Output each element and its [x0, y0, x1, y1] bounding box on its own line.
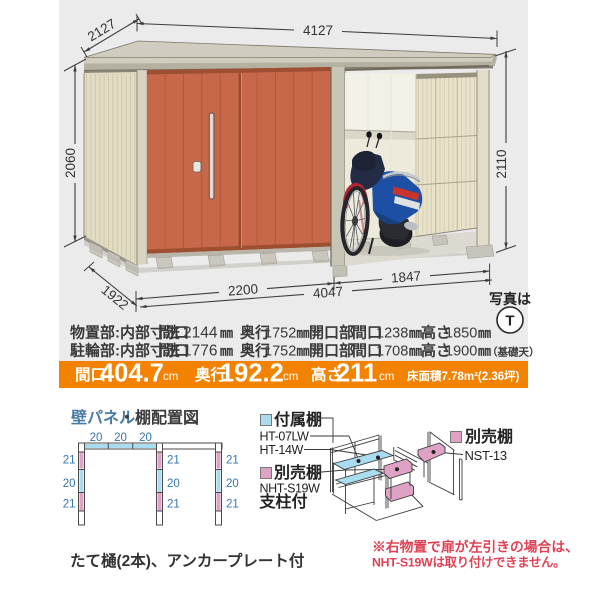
svg-text:開口部: 開口部 — [309, 324, 354, 342]
svg-text:NHT-S19Wは取り付けできません。: NHT-S19Wは取り付けできません。 — [372, 555, 565, 570]
svg-text:床面積7.78m²(2.36坪): 床面積7.78m²(2.36坪) — [407, 369, 520, 383]
svg-text:cm: cm — [283, 371, 298, 383]
svg-text:21: 21 — [226, 499, 239, 511]
svg-text:20: 20 — [90, 432, 103, 444]
svg-text:21: 21 — [167, 455, 180, 467]
svg-text:㎜: ㎜ — [297, 326, 310, 341]
svg-text:（基礎天）: （基礎天） — [487, 346, 540, 359]
svg-text:2110: 2110 — [494, 149, 509, 178]
svg-text:1900: 1900 — [445, 344, 477, 360]
svg-text:1752: 1752 — [264, 344, 296, 360]
svg-text:開口部: 開口部 — [309, 342, 354, 360]
svg-text:20: 20 — [63, 478, 76, 490]
svg-text:2144: 2144 — [183, 325, 218, 342]
svg-text:21: 21 — [63, 455, 76, 467]
svg-text:写真は: 写真は — [489, 291, 531, 307]
svg-text:1708: 1708 — [376, 344, 408, 360]
svg-text:1752: 1752 — [264, 326, 296, 342]
svg-text:cm: cm — [379, 371, 394, 383]
svg-text:支柱付: 支柱付 — [259, 492, 308, 511]
svg-text:1847: 1847 — [390, 268, 421, 285]
svg-text:21: 21 — [167, 499, 180, 511]
svg-text:21: 21 — [63, 499, 76, 511]
svg-text:20: 20 — [167, 478, 180, 490]
svg-text:付属棚: 付属棚 — [274, 410, 322, 429]
svg-text:20: 20 — [139, 432, 152, 444]
svg-text:NST-13: NST-13 — [465, 448, 507, 463]
svg-text:㎜: ㎜ — [220, 326, 233, 341]
svg-text:192.2: 192.2 — [220, 360, 284, 388]
svg-text:1776: 1776 — [183, 343, 217, 360]
svg-text:別売棚: 別売棚 — [465, 427, 513, 446]
svg-text:2200: 2200 — [227, 281, 258, 298]
svg-text:㎜: ㎜ — [478, 326, 491, 341]
svg-text:HT-07LW: HT-07LW — [260, 430, 310, 444]
svg-text:※右物置で扉が左引きの場合は、: ※右物置で扉が左引きの場合は、 — [372, 539, 579, 555]
svg-text:・棚配置図: ・棚配置図 — [119, 408, 199, 427]
svg-text:21: 21 — [226, 455, 239, 467]
svg-text:cm: cm — [163, 371, 178, 383]
svg-text:㎜: ㎜ — [297, 344, 310, 359]
svg-text:404.7: 404.7 — [100, 360, 164, 388]
svg-text:1238: 1238 — [376, 326, 408, 342]
svg-text:20: 20 — [226, 478, 239, 490]
svg-text:T: T — [505, 313, 514, 330]
svg-text:2060: 2060 — [63, 148, 78, 178]
svg-text:たて樋(2本)、アンカープレート付: たて樋(2本)、アンカープレート付 — [70, 551, 305, 570]
svg-text:4127: 4127 — [303, 23, 333, 38]
svg-text:20: 20 — [114, 432, 127, 444]
svg-text:4047: 4047 — [312, 284, 343, 301]
svg-text:1850: 1850 — [445, 326, 477, 342]
svg-text:211: 211 — [336, 360, 377, 388]
svg-text:㎜: ㎜ — [220, 344, 233, 359]
svg-text:HT-14W: HT-14W — [260, 443, 304, 457]
